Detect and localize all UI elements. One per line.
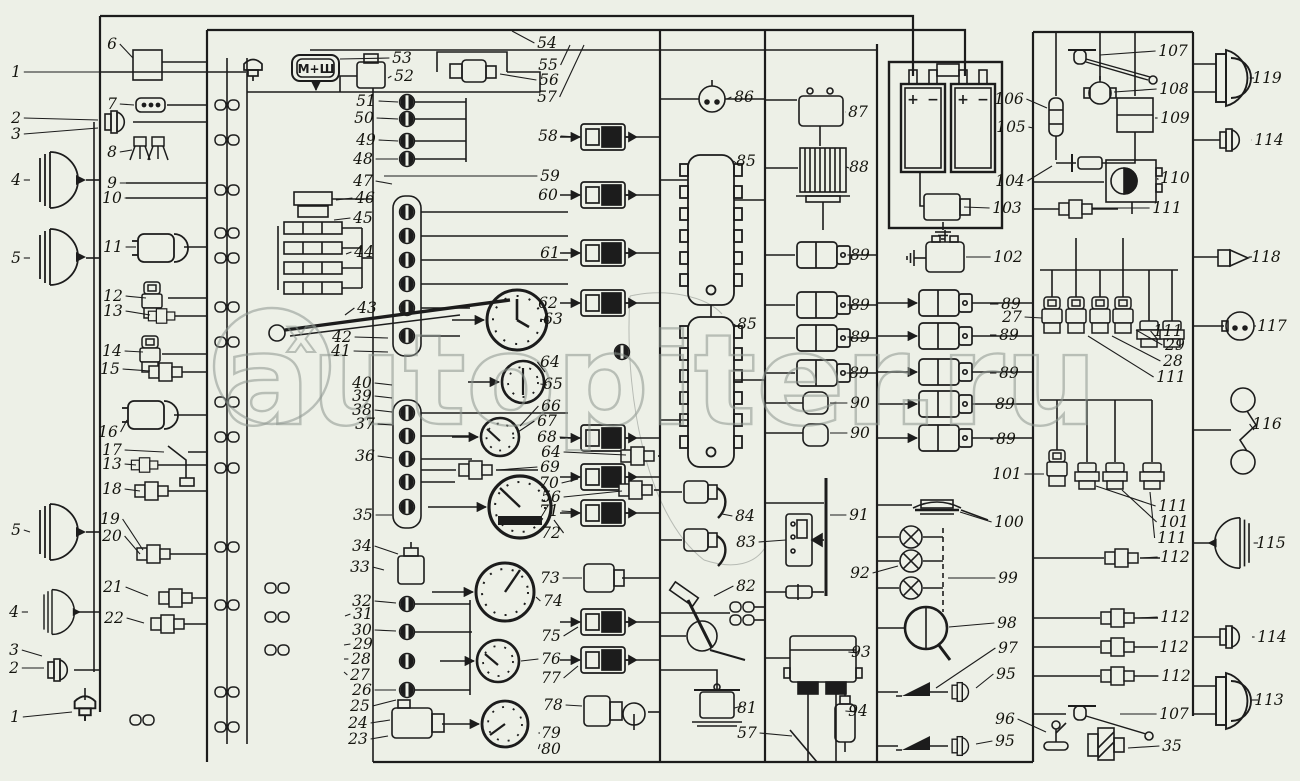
callout-label-106: 106 (994, 90, 1024, 108)
callout-label-89: 89 (850, 328, 870, 346)
bulb-icon (900, 550, 922, 572)
callout-label-65: 65 (543, 375, 563, 393)
marker-lamp-icon (105, 111, 124, 133)
callout-label-61: 61 (540, 244, 560, 262)
starter-relay-103 (924, 194, 970, 220)
callout-leader-49 (379, 140, 398, 141)
callout-label-72: 72 (541, 524, 561, 542)
callout-label-97: 97 (998, 639, 1018, 657)
battery-minus-sign: − (927, 92, 939, 108)
callout-label-1: 1 (10, 708, 20, 726)
callout-label-89: 89 (849, 364, 869, 382)
callout-label-112: 112 (1160, 608, 1190, 626)
switch-arrow-97 (896, 682, 930, 696)
callout-label-99: 99 (998, 569, 1018, 587)
callout-label-13: 13 (103, 302, 123, 320)
callout-leader-29 (344, 644, 350, 645)
marker-lamp-114 (1220, 129, 1239, 151)
callout-leader-70 (562, 479, 578, 483)
callout-label-5: 5 (11, 521, 21, 539)
battery-minus-sign: − (977, 92, 989, 108)
lamp-rod-107 (1068, 50, 1157, 84)
callout-label-88: 88 (849, 158, 869, 176)
callout-leader-74 (536, 597, 540, 601)
callout-leader-50 (377, 118, 398, 119)
plug-bulb-78 (584, 696, 645, 730)
sensor-icon (459, 461, 492, 479)
callout-label-114: 114 (1254, 131, 1284, 149)
callout-leader-3 (24, 128, 98, 134)
callout-label-76: 76 (541, 650, 561, 668)
callout-label-63: 63 (543, 310, 563, 328)
motor-icon (132, 234, 188, 262)
callout-label-85: 85 (737, 315, 757, 333)
connector-118 (1218, 250, 1248, 266)
callout-label-113: 113 (1254, 691, 1284, 709)
callout-label-89: 89 (850, 246, 870, 264)
callout-label-89: 89 (996, 430, 1016, 448)
motor-icon (122, 401, 178, 429)
ground-icon (907, 250, 914, 266)
callout-label-85: 85 (736, 152, 756, 170)
callout-label-103: 103 (992, 199, 1022, 217)
gauge-pressure (482, 701, 528, 747)
callout-label-15: 15 (100, 360, 120, 378)
marker-lamp-icon (48, 659, 67, 681)
callout-label-35: 35 (1162, 737, 1182, 755)
schematic-page: М+Ш + − + − x autopiter.ru 1623784910511… (0, 0, 1300, 781)
callout-label-25: 25 (349, 697, 370, 715)
callout-leader-47 (376, 181, 392, 184)
callout-label-4: 4 (10, 171, 21, 189)
callout-leader-106 (1026, 99, 1047, 108)
sensor-icon (1075, 463, 1099, 489)
gauge-temp (477, 640, 519, 682)
callout-label-74: 74 (543, 592, 563, 610)
callout-label-36: 36 (355, 447, 375, 465)
callout-label-81: 81 (737, 699, 757, 717)
marker-lamp-114 (1220, 626, 1239, 648)
fuse-56 (450, 60, 496, 82)
callout-label-86: 86 (734, 88, 754, 106)
callout-label-95: 95 (995, 732, 1015, 750)
callout-leader-45 (334, 218, 350, 220)
callout-label-14: 14 (102, 342, 122, 360)
bulb-icon (900, 577, 922, 599)
callout-label-83: 83 (736, 533, 756, 551)
sensor-icon (149, 363, 182, 381)
callout-label-47: 47 (352, 172, 373, 190)
washer-nozzle-icon (130, 137, 150, 160)
callout-leader-54 (512, 31, 534, 43)
callout-label-100: 100 (994, 513, 1024, 531)
callout-leader-8 (120, 150, 132, 152)
dome-lamp-100 (913, 500, 961, 514)
callout-label-89: 89 (995, 395, 1015, 413)
callout-label-6: 6 (107, 35, 117, 53)
switch-lever-84 (684, 481, 725, 518)
callout-label-87: 87 (848, 103, 868, 121)
callout-leader-96 (1018, 719, 1046, 732)
callout-label-116: 116 (1252, 415, 1282, 433)
callout-label-112: 112 (1159, 638, 1189, 656)
sensor-icon (1103, 463, 1127, 489)
callout-label-2: 2 (8, 659, 19, 677)
callout-label-95: 95 (996, 665, 1016, 683)
callout-leader-103 (964, 207, 990, 208)
plug-35 (1088, 728, 1124, 760)
callout-label-46: 46 (354, 189, 375, 207)
callout-leader-34 (375, 546, 398, 554)
callout-leader-71 (562, 511, 578, 512)
callout-label-89: 89 (999, 326, 1019, 344)
callout-leader-22 (127, 618, 144, 623)
callout-label-35: 35 (353, 506, 373, 524)
callout-label-75: 75 (541, 627, 561, 645)
callout-label-111: 111 (1156, 368, 1186, 386)
callout-label-23: 23 (347, 730, 368, 748)
headlight-icon (40, 152, 86, 208)
callout-label-19: 19 (100, 510, 120, 528)
callout-label-27: 27 (1001, 308, 1022, 326)
resistor-88 (796, 148, 850, 202)
callout-leader-21 (126, 587, 148, 596)
callout-leader-80 (538, 744, 540, 749)
callout-label-94: 94 (848, 702, 868, 720)
sensor-plug-icon (1113, 297, 1133, 333)
callout-label-89: 89 (999, 364, 1019, 382)
callout-label-51: 51 (356, 92, 376, 110)
callout-leader-100 (960, 512, 992, 522)
sensor-icon (151, 615, 184, 633)
callout-leader-6 (120, 44, 133, 58)
callout-label-119: 119 (1252, 69, 1282, 87)
callout-leader-5 (24, 530, 30, 532)
callout-label-109: 109 (1160, 109, 1190, 127)
sensor-icon (159, 589, 192, 607)
callout-leader-57 (560, 45, 584, 97)
battery (889, 62, 1002, 228)
headlight-icon (40, 229, 86, 285)
sensor-plug-icon (1047, 450, 1067, 486)
control-box-label: М+Ш (298, 62, 335, 76)
callout-label-107: 107 (1159, 705, 1189, 723)
callout-leader-35 (1128, 746, 1159, 748)
gearshift-96 (1044, 721, 1068, 750)
callout-label-91: 91 (849, 506, 869, 524)
callout-label-33: 33 (350, 558, 370, 576)
sensor-icon (148, 309, 174, 323)
callout-label-57: 57 (537, 88, 557, 106)
callout-label-13: 13 (102, 455, 122, 473)
callout-leader-51 (379, 101, 398, 102)
callout-label-118: 118 (1251, 248, 1281, 266)
callout-leader-82 (714, 586, 733, 596)
fuse-block-44 (284, 222, 342, 294)
washer-nozzle-icon (148, 137, 168, 160)
callout-label-73: 73 (540, 569, 560, 587)
callout-label-82: 82 (736, 577, 756, 595)
brake-chamber-119 (1216, 50, 1251, 106)
callout-label-112: 112 (1160, 548, 1190, 566)
round-connector-86 (699, 80, 725, 112)
callout-label-52: 52 (394, 67, 414, 85)
callout-leader-30 (375, 630, 396, 631)
callout-label-98: 98 (997, 614, 1017, 632)
callout-leader-95 (976, 741, 992, 744)
battery-plus-sign: + (907, 92, 919, 108)
callout-leader-31 (345, 614, 350, 616)
callout-label-4: 4 (8, 603, 19, 621)
callout-label-44: 44 (353, 243, 374, 261)
callout-leader-52 (388, 76, 391, 78)
callout-label-115: 115 (1256, 534, 1286, 552)
callout-leader-55 (561, 45, 570, 65)
callout-label-34: 34 (352, 537, 372, 555)
callout-label-80: 80 (541, 740, 561, 758)
callout-leader-3 (22, 650, 42, 656)
motor-110 (1106, 160, 1162, 202)
callout-label-90: 90 (850, 394, 870, 412)
headlight-icon (44, 590, 81, 635)
callout-label-59: 59 (540, 167, 560, 185)
connector-112 (1105, 549, 1138, 567)
switch-arrow-95 (896, 736, 930, 750)
solenoid-34 (398, 542, 424, 584)
callout-label-3: 3 (11, 125, 21, 143)
plafond-lamp-icon (952, 683, 968, 702)
sensor-icon (1140, 463, 1164, 489)
sensor-icon (619, 481, 652, 499)
callout-label-114: 114 (1257, 628, 1287, 646)
brake-chamber-113 (1216, 673, 1251, 729)
callout-label-5: 5 (11, 249, 21, 267)
callout-label-20: 20 (101, 527, 122, 545)
callout-leader-36 (378, 456, 392, 458)
spot-lamp-98 (905, 607, 950, 660)
callout-label-58: 58 (538, 127, 558, 145)
motor-108 (1084, 76, 1116, 104)
bulb-icon (900, 526, 922, 548)
callout-label-90: 90 (850, 424, 870, 442)
battery-plus-sign: + (957, 92, 969, 108)
callout-label-21: 21 (102, 578, 123, 596)
callout-label-111: 111 (1157, 529, 1187, 547)
callout-label-18: 18 (102, 480, 122, 498)
callout-label-45: 45 (352, 209, 373, 227)
relay-45-46 (294, 192, 332, 217)
connector-112 (1101, 667, 1134, 685)
switch-73 (584, 564, 624, 592)
fuse-106 (1049, 98, 1063, 136)
callout-label-64: 64 (540, 353, 560, 371)
callout-leader-44 (346, 252, 351, 254)
callout-label-22: 22 (103, 609, 124, 627)
headlight-115 (1208, 518, 1249, 568)
callout-leader-53 (340, 58, 389, 59)
callout-leader-95 (976, 674, 993, 688)
callout-leader-2 (24, 118, 98, 120)
callout-label-48: 48 (352, 150, 373, 168)
callout-label-1: 1 (11, 63, 21, 81)
callout-label-41: 41 (330, 342, 351, 360)
callout-label-89: 89 (850, 296, 870, 314)
callout-label-78: 78 (543, 696, 563, 714)
callout-leader-77 (564, 666, 578, 678)
callout-leader-98 (949, 623, 994, 627)
plafond-lamp-icon (952, 737, 968, 756)
callout-leader-17 (125, 450, 164, 452)
switch-panel-83 (786, 514, 822, 566)
callout-leader-27 (344, 672, 347, 675)
callout-leader-83 (759, 540, 786, 542)
callout-leader-75 (564, 627, 578, 636)
callout-label-71: 71 (539, 502, 559, 520)
plug-23-24 (392, 700, 444, 738)
callout-leader-56 (500, 74, 536, 80)
connector-strip-7 (136, 98, 165, 112)
callout-label-16: 16 (98, 423, 118, 441)
wiring-diagram-svg: М+Ш + − + − x autopiter.ru 1623784910511… (0, 0, 1300, 781)
callout-label-96: 96 (995, 710, 1015, 728)
callout-label-3: 3 (9, 641, 19, 659)
connector-strip-85 (680, 155, 742, 305)
relay-box-6 (133, 50, 162, 80)
callout-label-108: 108 (1159, 80, 1189, 98)
callout-label-92: 92 (850, 564, 870, 582)
callout-leader-107 (1100, 51, 1156, 55)
callout-leader-56 (564, 491, 622, 497)
callout-label-105: 105 (996, 118, 1026, 136)
headlight-icon (40, 504, 86, 560)
relay-87 (799, 88, 843, 126)
callout-label-56: 56 (539, 71, 559, 89)
callout-label-43: 43 (356, 299, 377, 317)
callout-label-110: 110 (1160, 169, 1190, 187)
callout-label-104: 104 (995, 172, 1025, 190)
callout-leader-33 (373, 567, 384, 570)
callout-label-53: 53 (392, 49, 412, 67)
callout-leader-78 (566, 705, 582, 706)
coil-81 (692, 684, 742, 726)
callout-label-102: 102 (993, 248, 1023, 266)
callout-label-54: 54 (537, 34, 557, 52)
callout-label-111: 111 (1152, 199, 1182, 217)
callout-label-57: 57 (737, 724, 757, 742)
callout-leader-25 (373, 700, 396, 706)
callout-leader-104 (1027, 166, 1052, 181)
callout-label-77: 77 (541, 669, 561, 687)
callout-label-60: 60 (538, 186, 558, 204)
callout-label-117: 117 (1257, 317, 1287, 335)
callout-label-11: 11 (103, 238, 123, 256)
regulator-102 (926, 236, 964, 272)
connector-112 (1101, 638, 1134, 656)
callout-label-7: 7 (107, 95, 117, 113)
callout-leader-111 (1150, 492, 1155, 538)
callout-label-49: 49 (355, 131, 376, 149)
callout-label-10: 10 (102, 189, 122, 207)
resistor-109 (1117, 98, 1153, 132)
connector-111 (1059, 200, 1092, 218)
round-connector-117 (1222, 312, 1254, 340)
callout-leader-32 (375, 601, 396, 603)
callout-leader-84 (722, 514, 732, 516)
fuse-relay-89 (797, 242, 850, 268)
callout-label-8: 8 (107, 143, 117, 161)
callout-label-112: 112 (1161, 667, 1191, 685)
callout-leader-20 (125, 536, 140, 554)
callout-label-101: 101 (992, 465, 1022, 483)
fuse-inline (786, 584, 812, 600)
callout-label-50: 50 (354, 109, 374, 127)
callout-label-37: 37 (355, 415, 375, 433)
callout-leader-7 (120, 104, 134, 105)
callout-label-107: 107 (1158, 42, 1188, 60)
callout-label-84: 84 (735, 507, 755, 525)
fuse-104 (1072, 154, 1102, 172)
gauge-tachometer (476, 563, 534, 621)
callout-leader-76 (521, 659, 538, 661)
callout-leader-1 (23, 712, 72, 717)
callout-label-93: 93 (851, 643, 871, 661)
connector-112 (1101, 609, 1134, 627)
